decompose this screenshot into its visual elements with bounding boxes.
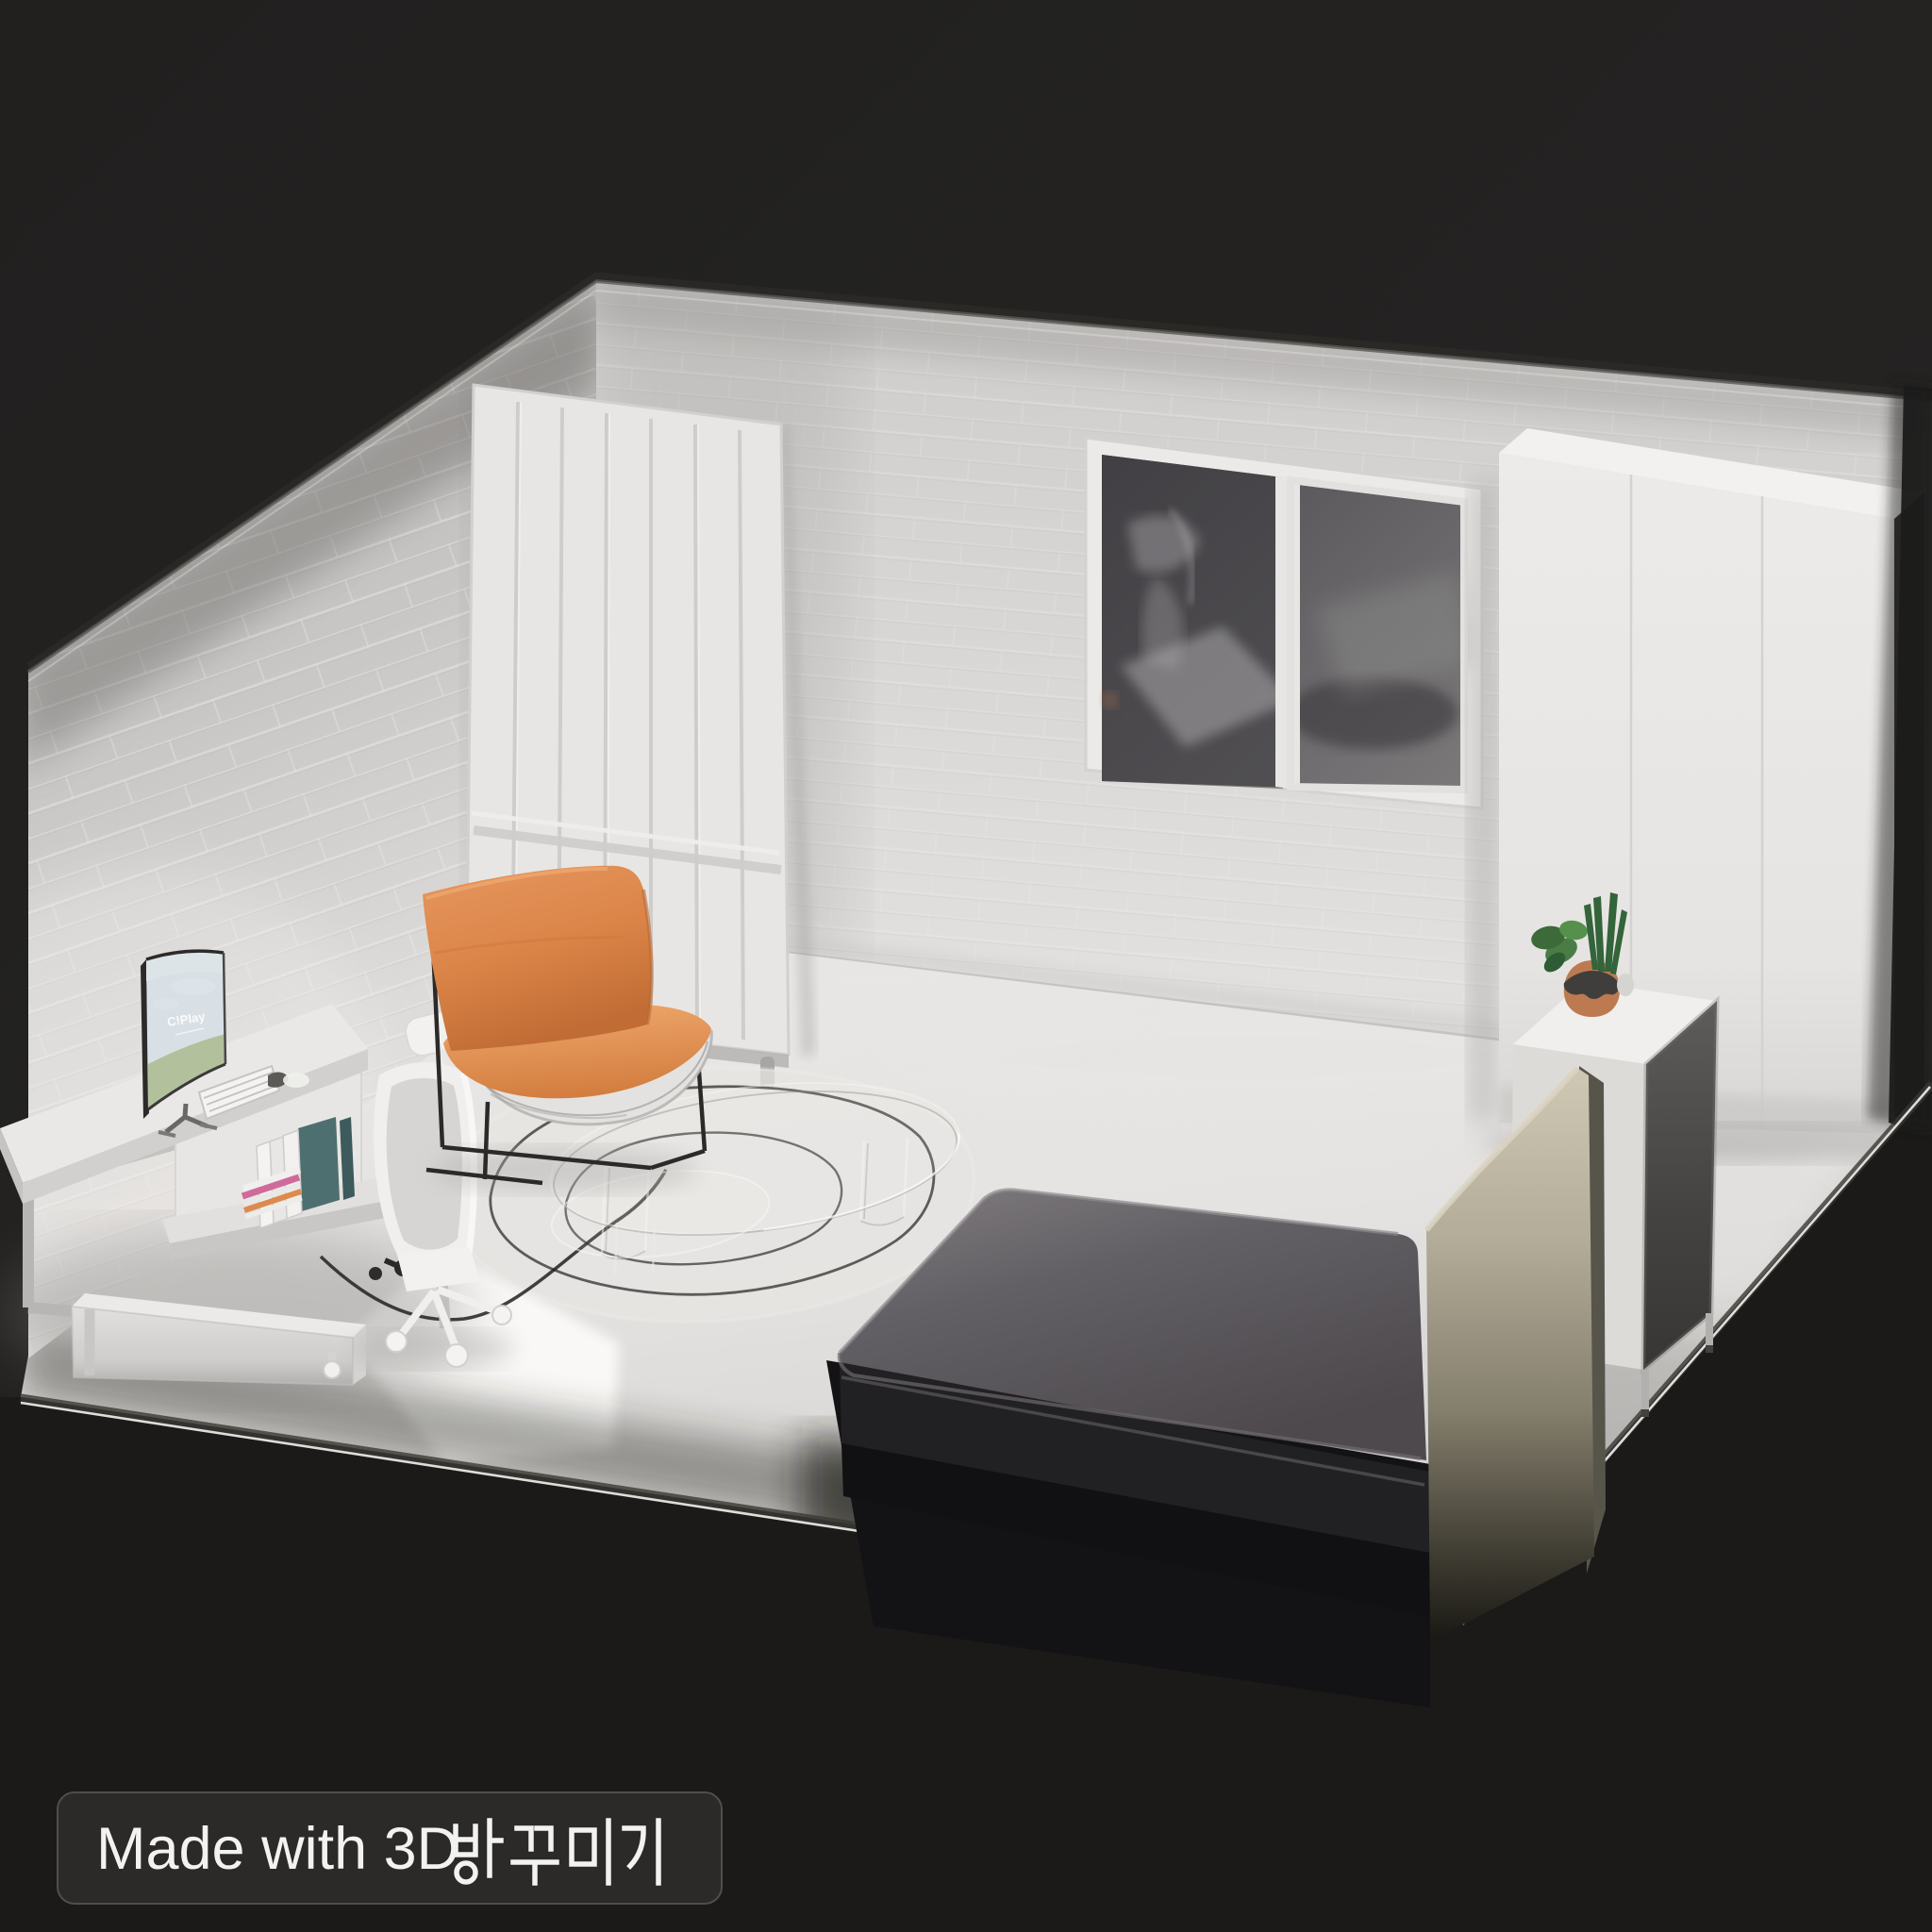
svg-text:Made with 3D: Made with 3D xyxy=(96,1816,459,1882)
